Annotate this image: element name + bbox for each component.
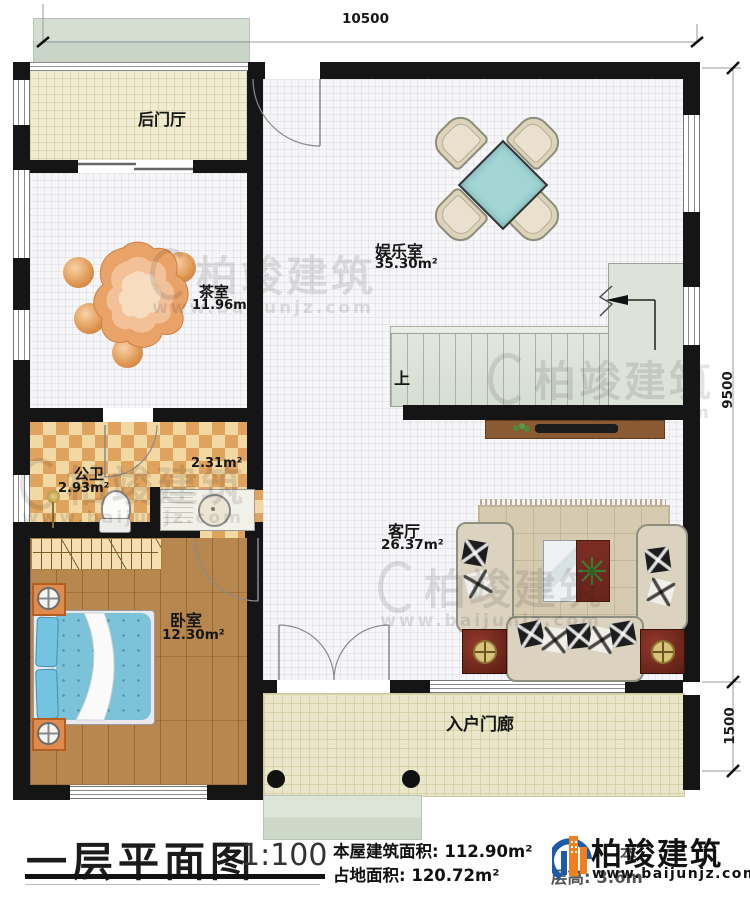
wall-segment <box>247 62 263 408</box>
window <box>13 475 30 522</box>
window <box>683 115 700 212</box>
window <box>683 287 700 345</box>
front-steps <box>263 795 422 840</box>
pouf <box>165 252 196 283</box>
porch-column <box>267 770 285 788</box>
room-subarea-bath: 2.31m² <box>191 456 242 471</box>
wall-segment <box>13 522 30 800</box>
wall-segment <box>683 212 700 287</box>
stair-landing <box>608 263 686 407</box>
nightstand <box>32 583 66 616</box>
wall-segment <box>30 160 78 173</box>
room-label-back-hall: 后门厅 <box>138 106 186 130</box>
brand-logo-icon <box>552 827 592 885</box>
window <box>13 310 30 360</box>
tea-opening <box>78 160 193 173</box>
wardrobe-rail <box>33 552 158 553</box>
side-table <box>462 629 507 674</box>
pillow <box>541 626 568 653</box>
bed-pillow <box>35 617 59 668</box>
pouf <box>112 337 143 368</box>
wall-segment <box>207 785 263 800</box>
drawing-title: 一层平面图 <box>26 828 256 888</box>
brand-website: www.baijunjz.com <box>592 866 750 882</box>
lamp-icon <box>37 722 60 745</box>
wall-segment <box>263 680 277 693</box>
wall-segment <box>683 79 700 115</box>
floor-plan-page: { "dimensions": { "top": "10500", "right… <box>0 0 750 900</box>
room-area-game: 35.30m² <box>375 256 438 272</box>
sink-drain <box>211 507 215 511</box>
dim-top: 10500 <box>342 11 389 27</box>
bed-pillow <box>35 669 59 720</box>
pillow <box>644 546 671 573</box>
wall-segment <box>13 408 103 422</box>
wardrobe <box>31 538 162 570</box>
wall-segment <box>13 258 30 310</box>
dim-right-porch: 1500 <box>722 700 738 752</box>
tv <box>535 424 618 433</box>
porch-column <box>402 770 420 788</box>
porch-pillar <box>683 695 700 790</box>
lamp-icon <box>37 587 60 610</box>
sink-basin <box>198 494 231 527</box>
wall-segment <box>193 160 247 173</box>
pillow <box>461 539 489 567</box>
wall-segment <box>320 62 700 79</box>
pillow <box>609 620 637 648</box>
bedroom-window <box>70 786 207 799</box>
wall-segment <box>247 538 263 800</box>
room-label-porch: 入户门廊 <box>446 710 514 735</box>
nightstand <box>32 718 66 751</box>
lamp-icon <box>651 640 675 664</box>
window <box>13 170 30 258</box>
title-underline <box>25 874 325 879</box>
coffee-table-mirror <box>543 540 578 602</box>
lamp-icon <box>473 640 497 664</box>
coffee-table-wood <box>576 540 610 602</box>
stat-land-area: 占地面积: 120.72m² <box>333 862 499 886</box>
dim-right-main: 9500 <box>720 364 736 416</box>
bed-duvet <box>56 613 151 720</box>
sofa-right <box>636 524 688 632</box>
toilet-tank <box>99 518 131 533</box>
stat-building-area: 本屋建筑面积: 112.90m² <box>333 838 532 862</box>
stair-treads <box>390 333 610 407</box>
drawing-scale: 1:100 <box>241 838 327 873</box>
pouf <box>63 257 94 288</box>
stair-wall <box>403 405 700 420</box>
wall-segment <box>153 408 263 422</box>
back-door <box>30 62 248 71</box>
wall-segment <box>683 345 700 682</box>
title-underline-thin <box>25 884 320 885</box>
vanity-ribs <box>163 492 193 525</box>
room-area-tea: 11.96m² <box>192 298 252 313</box>
room-area-bath: 2.93m² <box>58 481 109 496</box>
pouf <box>74 303 105 334</box>
shower-pole <box>52 502 54 528</box>
room-area-living: 26.37m² <box>381 537 444 553</box>
room-area-bedroom: 12.30m² <box>162 627 225 643</box>
wall-segment <box>390 680 430 693</box>
wall-segment <box>247 422 263 490</box>
side-table <box>640 629 685 674</box>
pillow <box>517 620 545 648</box>
stairs-up-label: 上 <box>394 365 410 389</box>
wall-segment <box>13 125 30 170</box>
back-steps <box>33 18 250 64</box>
window <box>13 80 30 125</box>
wall-segment <box>13 785 70 800</box>
wall-segment <box>13 62 30 80</box>
porch-floor <box>263 693 685 797</box>
bath-divider-wall <box>150 487 160 528</box>
